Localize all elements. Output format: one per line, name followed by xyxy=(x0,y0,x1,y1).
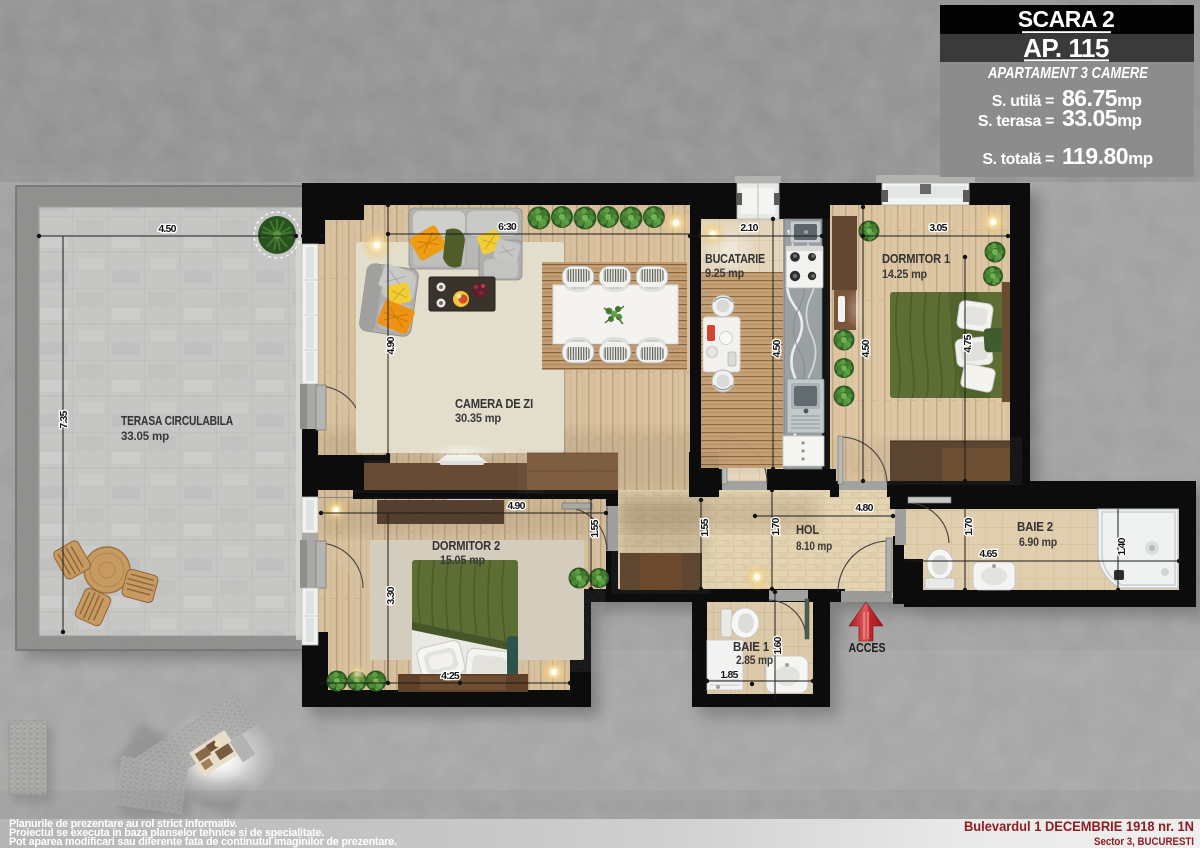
svg-text:S. utilă =: S. utilă = xyxy=(992,93,1054,110)
svg-text:Bulevardul 1 DECEMBRIE 1918 nr: Bulevardul 1 DECEMBRIE 1918 nr. 1N xyxy=(964,818,1194,834)
svg-text:8.10 mp: 8.10 mp xyxy=(796,539,832,553)
svg-text:1.85: 1.85 xyxy=(720,669,738,681)
svg-text:SCARA 2: SCARA 2 xyxy=(1018,6,1115,32)
svg-text:15.05 mp: 15.05 mp xyxy=(440,553,485,567)
svg-text:33.05 mp: 33.05 mp xyxy=(121,429,169,443)
svg-text:DORMITOR 1: DORMITOR 1 xyxy=(882,251,950,266)
svg-text:AP. 115: AP. 115 xyxy=(1023,33,1109,63)
svg-text:4.65: 4.65 xyxy=(979,548,997,560)
svg-text:S. terasa =: S. terasa = xyxy=(978,113,1054,130)
svg-text:6.90 mp: 6.90 mp xyxy=(1019,535,1057,549)
svg-text:Sector 3, BUCURESTI: Sector 3, BUCURESTI xyxy=(1094,836,1194,848)
svg-text:BAIE 1: BAIE 1 xyxy=(733,639,769,654)
svg-text:3.30: 3.30 xyxy=(385,586,397,604)
svg-text:1.60: 1.60 xyxy=(772,636,784,654)
svg-text:1.55: 1.55 xyxy=(589,519,601,537)
svg-text:S. totală =: S. totală = xyxy=(982,151,1054,168)
svg-text:4.80: 4.80 xyxy=(855,502,873,514)
svg-text:BUCATARIE: BUCATARIE xyxy=(705,251,765,266)
svg-text:ACCES: ACCES xyxy=(849,641,886,655)
svg-text:APARTAMENT 3 CAMERE: APARTAMENT 3 CAMERE xyxy=(987,65,1149,82)
svg-text:CAMERA DE ZI: CAMERA DE ZI xyxy=(455,396,533,411)
svg-text:4:25: 4:25 xyxy=(441,670,460,682)
svg-text:30.35 mp: 30.35 mp xyxy=(455,411,501,425)
svg-text:4.75: 4.75 xyxy=(962,334,974,352)
svg-text:HOL: HOL xyxy=(796,522,819,537)
svg-text:BAIE 2: BAIE 2 xyxy=(1017,519,1053,534)
svg-text:4.50: 4.50 xyxy=(771,339,783,357)
svg-text:TERASA CIRCULABILA: TERASA CIRCULABILA xyxy=(121,413,234,428)
svg-text:14.25 mp: 14.25 mp xyxy=(882,267,927,281)
svg-text:3.05: 3.05 xyxy=(929,222,947,234)
svg-text:4.90: 4.90 xyxy=(385,336,397,354)
svg-text:Pot aparea modificari sau dife: Pot aparea modificari sau diferente fata… xyxy=(9,836,397,848)
svg-text:4.90: 4.90 xyxy=(507,500,525,512)
svg-text:2.10: 2.10 xyxy=(740,222,758,234)
svg-text:6:30: 6:30 xyxy=(498,221,517,233)
svg-text:4.50: 4.50 xyxy=(158,223,176,235)
svg-text:DORMITOR 2: DORMITOR 2 xyxy=(432,538,500,553)
svg-text:9.25 mp: 9.25 mp xyxy=(705,266,744,280)
svg-text:1.55: 1.55 xyxy=(699,518,711,536)
svg-text:7.35: 7.35 xyxy=(58,410,70,428)
svg-text:4.50: 4.50 xyxy=(860,339,872,357)
svg-text:2.85 mp: 2.85 mp xyxy=(736,653,773,667)
svg-text:1.40: 1.40 xyxy=(1116,537,1128,555)
svg-text:1.70: 1.70 xyxy=(963,517,975,535)
svg-text:1.70: 1.70 xyxy=(770,517,782,535)
